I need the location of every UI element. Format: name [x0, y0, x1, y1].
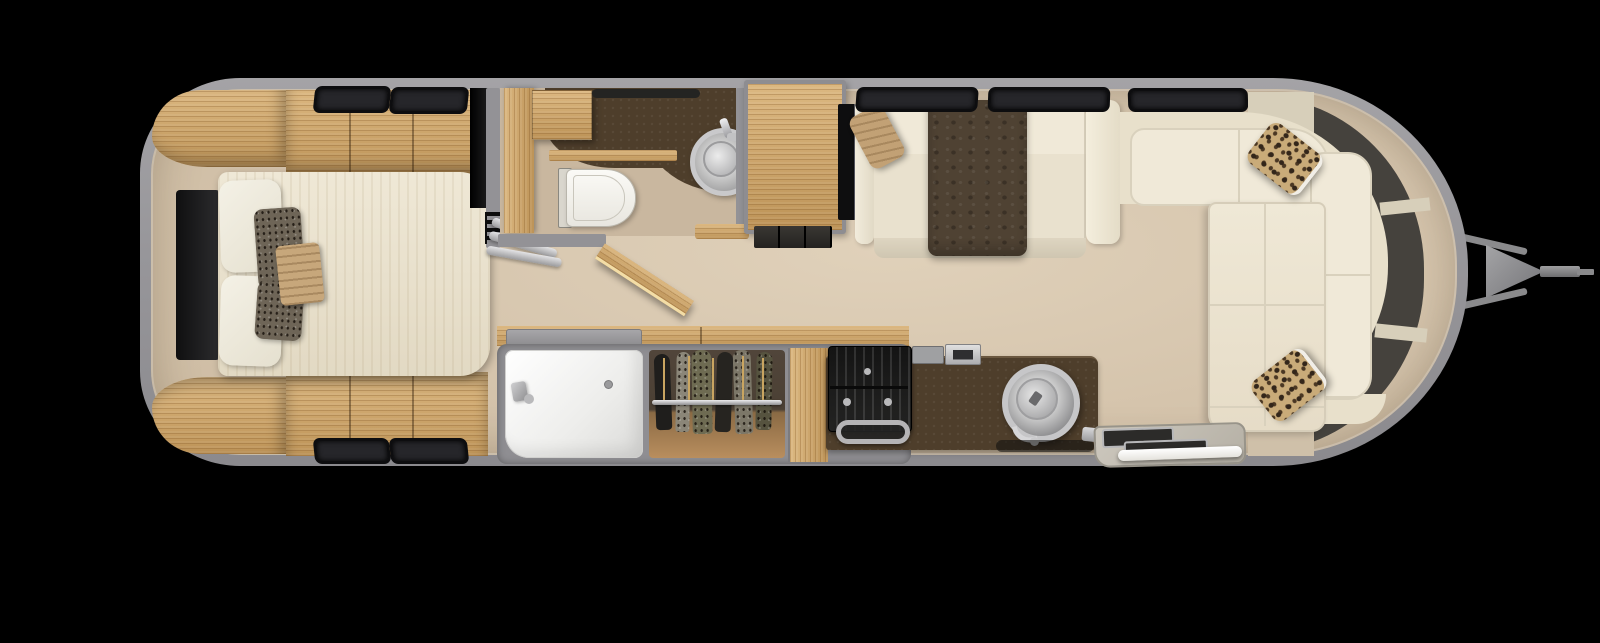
toilet-seat-line: [573, 175, 625, 221]
cooktop-knob: [884, 398, 892, 406]
bedroom-window-top-2: [389, 87, 470, 114]
side-table: [744, 80, 846, 234]
bathroom-wall-bottom: [498, 234, 606, 247]
wardrobe-hanger-stick: [663, 358, 665, 404]
bedroom-corner-wardrobe-bottom: [152, 377, 288, 454]
cooktop-knob: [864, 368, 871, 375]
wardrobe-hanger-stick: [762, 358, 764, 402]
cooktop-grate-divider: [830, 386, 908, 389]
bathroom-cabinet-box: [532, 90, 592, 140]
shower-head-hose: [524, 394, 534, 404]
sofa-window-2: [988, 87, 1111, 112]
bed-pillow-tan: [275, 242, 325, 306]
oven-handle: [836, 420, 910, 444]
bathroom-sink-bowl: [703, 141, 739, 177]
kitchen-floor-mat-shadow: [996, 440, 1094, 452]
bathroom-counter-wood-edge: [549, 150, 677, 161]
hitch-coupler-tip: [1577, 269, 1594, 275]
cooktop-knob: [843, 398, 851, 406]
sofa-window-3: [1128, 88, 1249, 112]
bay-counter-seam: [700, 327, 702, 345]
bedroom-tv: [176, 190, 220, 360]
sofa-throw-blanket: [928, 100, 1027, 256]
shower-drain: [604, 380, 613, 389]
bathroom-cabinet-column: [504, 88, 534, 233]
bay-wood-end-panel: [788, 348, 828, 462]
bedroom-window-bottom-1: [313, 438, 392, 464]
hitch-coupler: [1540, 266, 1580, 277]
bedroom-corner-wardrobe-top: [152, 90, 288, 167]
trailer-floorplan: [0, 0, 1600, 643]
wardrobe-hanger-stick: [688, 356, 690, 404]
counter-appliance-2: [945, 344, 981, 365]
wardrobe-clothes: [715, 352, 734, 433]
bathroom-vent: [592, 89, 700, 98]
bedroom-window-bottom-2: [389, 438, 470, 464]
side-table-base: [754, 226, 832, 248]
bedroom-window-top-1: [313, 86, 392, 113]
wardrobe-clothes: [691, 350, 712, 434]
wardrobe-hanger-stick: [742, 356, 744, 404]
shower-stall: [505, 350, 643, 458]
sofa-window-1: [855, 87, 979, 112]
wardrobe-rod: [652, 400, 782, 405]
wardrobe-hanger-stick: [712, 358, 714, 404]
counter-appliance-1: [912, 346, 944, 364]
sofa-armrest-right: [1086, 100, 1120, 244]
bathroom-ledge: [695, 224, 749, 239]
wardrobe-clothes: [755, 352, 772, 430]
